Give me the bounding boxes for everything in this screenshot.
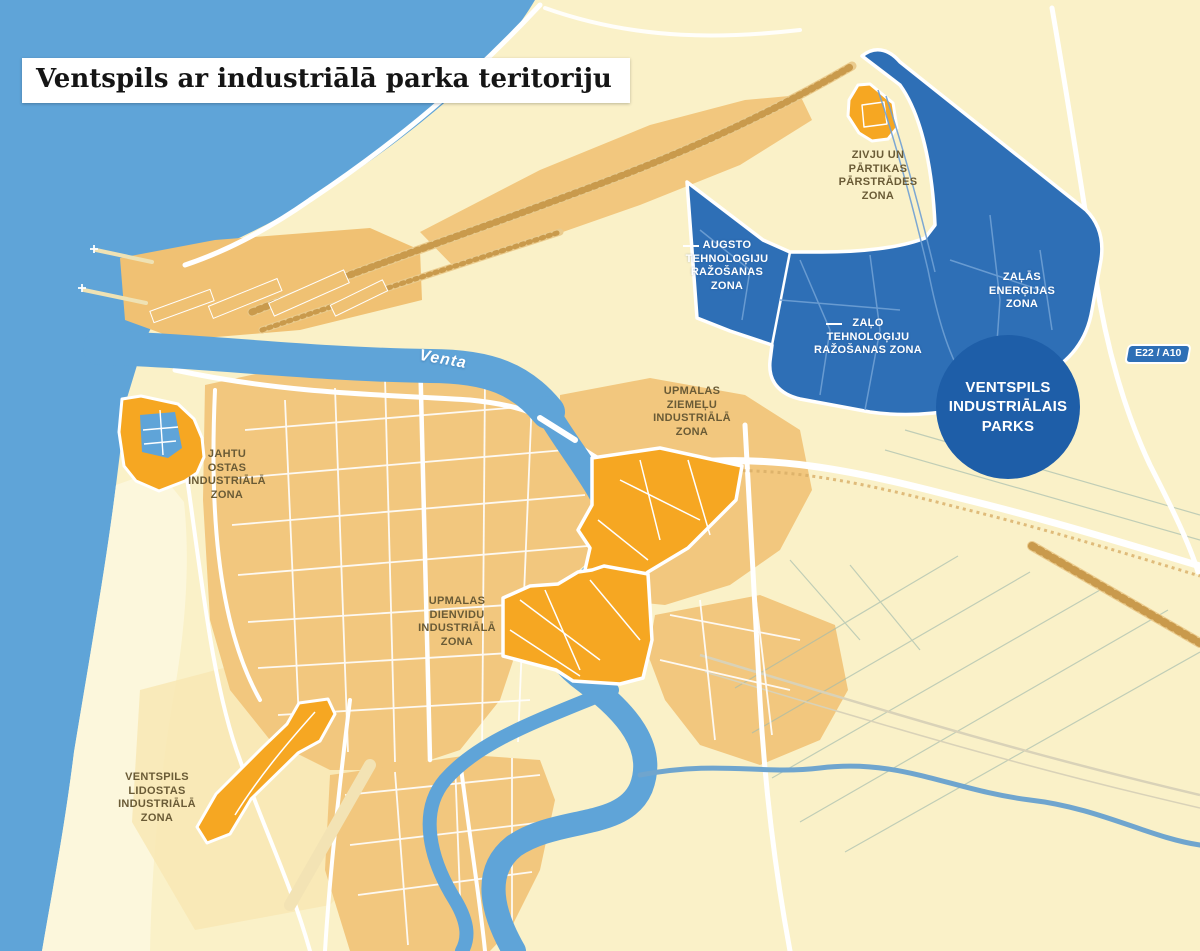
ventspils-map-page: { "title": "Ventspils ar industriālā par… <box>0 0 1200 951</box>
industrial-park-circle: VENTSPILS INDUSTRIĀLAIS PARKS <box>936 335 1080 479</box>
map-title: Ventspils ar industriālā parka teritorij… <box>22 58 630 103</box>
road-badge-e22-a10: E22 / A10 <box>1124 344 1192 364</box>
road-badge-text: E22 / A10 <box>1135 348 1181 359</box>
